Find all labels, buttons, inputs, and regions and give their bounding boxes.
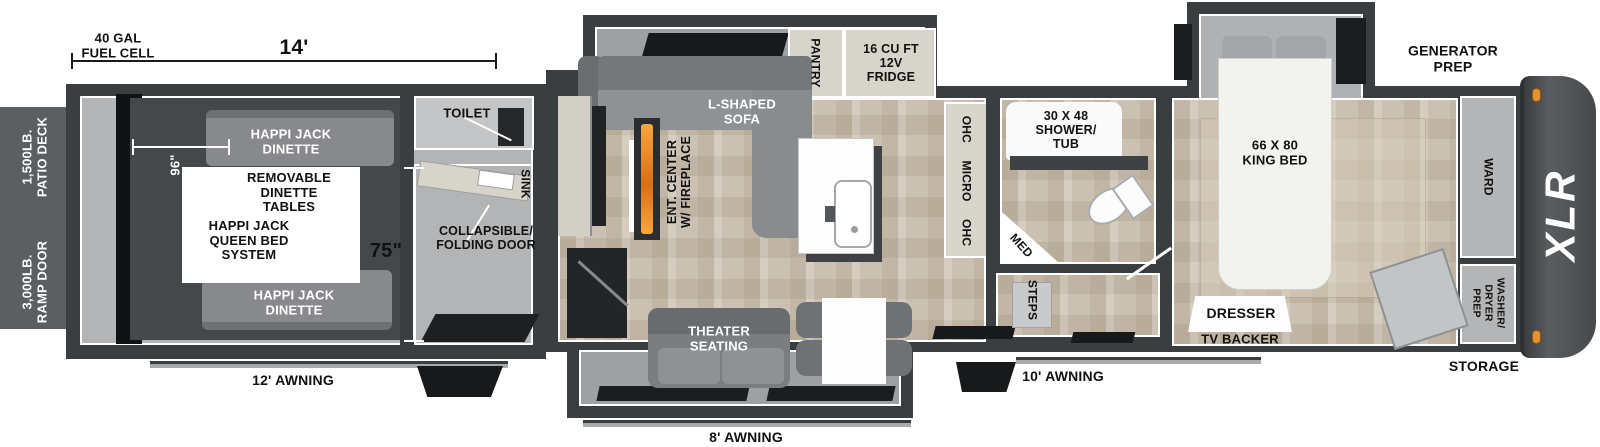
dim-96in-tick-right xyxy=(228,139,230,155)
lower-tv-fireplace xyxy=(567,248,627,338)
tv-panel xyxy=(592,106,606,226)
dinette-chair-2 xyxy=(796,340,822,376)
queen-bed-system-label: HAPPI JACK QUEEN BED SYSTEM xyxy=(209,219,290,263)
dim-75in-cap-bottom xyxy=(404,340,424,342)
dinette-chair-3 xyxy=(886,302,912,338)
hall-window-left xyxy=(932,326,1015,339)
dinette-chair-4 xyxy=(886,340,912,376)
dim-14ft-tick-left xyxy=(71,53,73,69)
sink-faucet-icon xyxy=(825,206,835,222)
dim-75in-line xyxy=(413,168,415,342)
fireplace-flame xyxy=(641,124,653,234)
generator-prep-label: GENERATOR PREP xyxy=(1408,43,1498,74)
awning-8ft-label: 8' AWNING xyxy=(709,430,783,446)
dim-75in-label: 75" xyxy=(370,240,402,262)
marker-light-top xyxy=(1532,88,1541,102)
dim-96in-line xyxy=(133,146,230,148)
washer-dryer-label: WASHER/ DRYER PREP xyxy=(1470,278,1505,328)
overhead-cabinet-label: OHC MICRO OHC xyxy=(959,116,972,247)
pantry-label: PANTRY xyxy=(808,38,821,87)
wardrobe-label: WARD xyxy=(1481,158,1494,195)
dim-96in-tick-left xyxy=(132,139,134,155)
tv-backer-label: TV BACKER xyxy=(1201,333,1279,348)
dinette-chair-1 xyxy=(796,302,822,338)
fridge-label: 16 CU FT 12V FRIDGE xyxy=(863,42,919,84)
removable-tables-label: REMOVABLE DINETTE TABLES xyxy=(247,171,331,215)
patio-deck-label: 1,500LB. PATIO DECK xyxy=(20,117,49,197)
floorplan-canvas: 40 GAL FUEL CELL 14' GENERATOR PREP 1,50… xyxy=(0,0,1600,447)
steps-label: STEPS xyxy=(1025,280,1038,320)
storage-label: STORAGE xyxy=(1449,359,1519,375)
folding-door-label: COLLAPSIBLE/ FOLDING DOOR xyxy=(436,224,536,252)
awning-bar-8ft xyxy=(583,420,911,427)
king-bed xyxy=(1218,58,1332,290)
main-entry-step xyxy=(956,362,1016,392)
ent-center-label: ENT. CENTER W/ FIREPLACE xyxy=(665,136,693,228)
garage-entry-step xyxy=(417,366,503,397)
happi-jack-dinette-bottom-label: HAPPI JACK DINETTE xyxy=(254,288,335,317)
entry-floor-mat xyxy=(421,314,540,342)
dim-96in-label: 96" xyxy=(169,154,184,175)
sofa-back xyxy=(598,56,812,92)
slide-window-left xyxy=(596,386,749,401)
sofa-label: L-SHAPED SOFA xyxy=(708,97,776,126)
bedroom-window-left xyxy=(1174,24,1192,80)
theater-seating-label: THEATER SEATING xyxy=(688,324,750,353)
dim-75in-cap-top xyxy=(404,167,424,169)
king-bed-label: 66 X 80 KING BED xyxy=(1242,138,1307,167)
ent-center-cabinet xyxy=(558,96,592,236)
hall-window-right xyxy=(1071,332,1136,343)
dinette-table xyxy=(822,298,886,384)
garage-divider-wall xyxy=(400,88,414,346)
fuel-cell-label: 40 GAL FUEL CELL xyxy=(81,31,154,60)
awning-12ft-label: 12' AWNING xyxy=(252,373,334,389)
toilet-label: TOILET xyxy=(443,107,490,122)
ramp-door-label: 3,000LB. RAMP DOOR xyxy=(20,241,49,323)
slide-window-right xyxy=(766,386,895,401)
sink-drain xyxy=(851,226,858,233)
happi-jack-dinette-top-label: HAPPI JACK DINETTE xyxy=(251,127,332,156)
awning-10ft-label: 10' AWNING xyxy=(1022,369,1104,385)
sink-label: SINK xyxy=(518,169,531,198)
bedroom-window-right xyxy=(1336,18,1366,84)
fireplace-trim xyxy=(629,140,634,232)
awning-bar-10ft xyxy=(1016,357,1261,364)
shower-rail xyxy=(1010,156,1148,170)
kitchen-sink xyxy=(834,180,872,248)
dim-14ft-label: 14' xyxy=(280,36,309,60)
dim-14ft-tick-right xyxy=(495,53,497,69)
marker-light-bottom xyxy=(1532,330,1541,344)
shower-label: 30 X 48 SHOWER/ TUB xyxy=(1035,109,1096,151)
brand-logo: XLR xyxy=(1536,169,1583,262)
dresser-label: DRESSER xyxy=(1206,306,1275,322)
